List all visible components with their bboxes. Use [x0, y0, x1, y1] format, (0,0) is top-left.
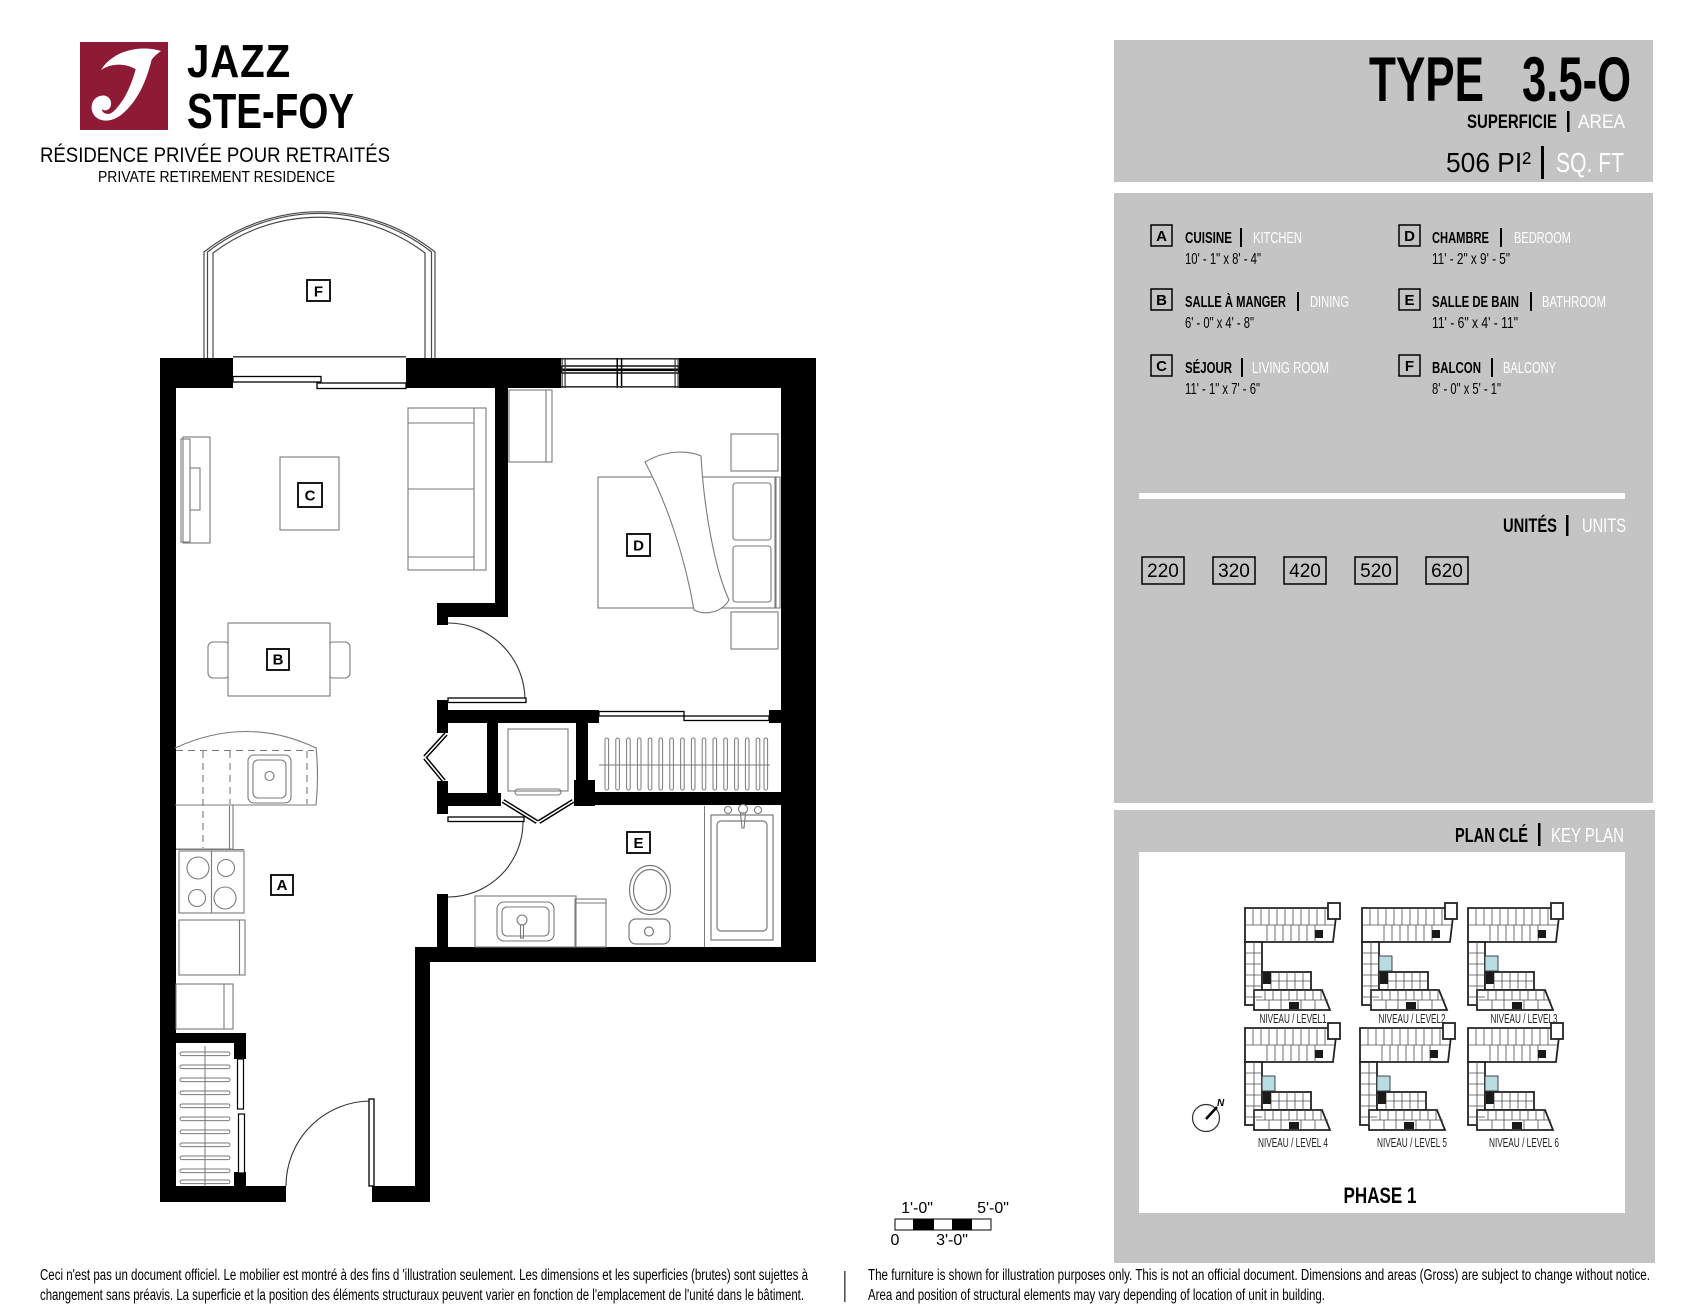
svg-text:10' - 1" x 8' - 4": 10' - 1" x 8' - 4": [1185, 251, 1261, 268]
svg-text:AREA: AREA: [1578, 112, 1625, 133]
svg-text:NIVEAU / LEVEL 5: NIVEAU / LEVEL 5: [1377, 1136, 1447, 1150]
svg-text:D: D: [633, 538, 644, 555]
svg-text:RÉSIDENCE PRIVÉE POUR RETRAITÉ: RÉSIDENCE PRIVÉE POUR RETRAITÉS: [40, 144, 390, 167]
svg-text:TYPE: TYPE: [1369, 45, 1484, 115]
svg-text:SQ. FT: SQ. FT: [1556, 147, 1624, 178]
svg-text:The furniture is shown for ill: The furniture is shown for illustration …: [868, 1267, 1650, 1284]
svg-text:3.5-O: 3.5-O: [1522, 45, 1631, 115]
svg-text:11' - 2" x 9' - 5": 11' - 2" x 9' - 5": [1432, 251, 1510, 268]
svg-text:NIVEAU / LEVEL 6: NIVEAU / LEVEL 6: [1489, 1136, 1559, 1150]
svg-text:NIVEAU / LEVEL 4: NIVEAU / LEVEL 4: [1258, 1136, 1328, 1150]
svg-text:320: 320: [1218, 561, 1250, 582]
svg-text:CUISINE: CUISINE: [1185, 230, 1232, 247]
svg-text:SUPERFICIE: SUPERFICIE: [1467, 112, 1557, 133]
svg-text:220: 220: [1147, 561, 1179, 582]
svg-text:B: B: [273, 652, 284, 669]
svg-text:Ceci n'est pas un document off: Ceci n'est pas un document officiel. Le …: [40, 1267, 808, 1284]
svg-text:CHAMBRE: CHAMBRE: [1432, 230, 1489, 247]
svg-text:PHASE 1: PHASE 1: [1344, 1183, 1417, 1208]
svg-text:PRIVATE RETIREMENT RESIDENCE: PRIVATE RETIREMENT RESIDENCE: [98, 169, 335, 186]
svg-text:NIVEAU / LEVEL3: NIVEAU / LEVEL3: [1491, 1012, 1558, 1026]
svg-text:3'-0": 3'-0": [936, 1232, 968, 1249]
svg-text:Area and position of structura: Area and position of structural elements…: [868, 1287, 1325, 1304]
svg-text:D: D: [1404, 228, 1415, 245]
svg-text:UNITÉS: UNITÉS: [1503, 515, 1557, 537]
svg-text:changement sans préavis. La su: changement sans préavis. La superficie e…: [40, 1287, 804, 1304]
svg-text:F: F: [314, 284, 323, 301]
svg-text:LIVING ROOM: LIVING ROOM: [1252, 360, 1329, 377]
svg-text:0: 0: [891, 1232, 900, 1249]
svg-text:506 PI²: 506 PI²: [1446, 147, 1531, 178]
svg-text:N: N: [1217, 1098, 1225, 1109]
svg-text:E: E: [1404, 292, 1414, 309]
svg-text:A: A: [277, 877, 288, 894]
svg-text:STE-FOY: STE-FOY: [187, 85, 354, 139]
svg-text:E: E: [633, 835, 643, 852]
svg-text:BATHROOM: BATHROOM: [1542, 294, 1606, 311]
svg-text:BEDROOM: BEDROOM: [1514, 230, 1571, 247]
svg-text:UNITS: UNITS: [1582, 516, 1626, 537]
svg-text:NIVEAU / LEVEL1: NIVEAU / LEVEL1: [1260, 1012, 1327, 1026]
svg-text:620: 620: [1431, 561, 1463, 582]
svg-text:PLAN CLÉ: PLAN CLÉ: [1455, 824, 1528, 847]
svg-text:1'-0": 1'-0": [901, 1200, 933, 1217]
svg-text:SALLE DE BAIN: SALLE DE BAIN: [1432, 294, 1519, 311]
svg-text:6' - 0" x 4' - 8": 6' - 0" x 4' - 8": [1185, 315, 1254, 332]
svg-text:JAZZ: JAZZ: [187, 35, 291, 87]
svg-text:SALLE À MANGER: SALLE À MANGER: [1185, 294, 1286, 311]
svg-text:C: C: [1156, 358, 1167, 375]
svg-text:KITCHEN: KITCHEN: [1253, 230, 1302, 247]
svg-text:11' - 1" x 7' - 6": 11' - 1" x 7' - 6": [1185, 381, 1260, 398]
svg-text:B: B: [1156, 292, 1167, 309]
svg-text:520: 520: [1360, 561, 1392, 582]
svg-text:NIVEAU / LEVEL2: NIVEAU / LEVEL2: [1379, 1012, 1446, 1026]
svg-text:C: C: [305, 488, 316, 505]
svg-text:BALCON: BALCON: [1432, 360, 1481, 377]
svg-text:BALCONY: BALCONY: [1503, 360, 1556, 377]
svg-text:DINING: DINING: [1310, 294, 1349, 311]
svg-text:11' - 6" x 4' - 11": 11' - 6" x 4' - 11": [1432, 315, 1518, 332]
svg-text:A: A: [1156, 228, 1167, 245]
svg-text:8' - 0" x 5' - 1": 8' - 0" x 5' - 1": [1432, 381, 1501, 398]
svg-text:F: F: [1405, 358, 1414, 375]
svg-text:420: 420: [1289, 561, 1321, 582]
svg-text:KEY PLAN: KEY PLAN: [1551, 825, 1624, 847]
svg-text:SÉJOUR: SÉJOUR: [1185, 360, 1232, 377]
svg-text:5'-0": 5'-0": [977, 1200, 1009, 1217]
